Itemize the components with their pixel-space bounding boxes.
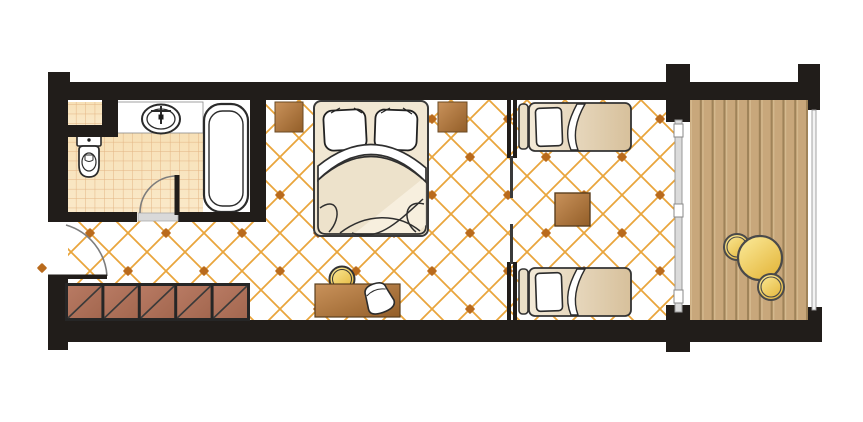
- pillow: [535, 273, 562, 312]
- door-handle: [674, 204, 683, 217]
- double-bed: [314, 101, 428, 236]
- door-handle: [674, 124, 683, 137]
- nightstand-right: [438, 102, 467, 132]
- balcony-railing: [812, 110, 816, 310]
- headboard: [519, 104, 528, 149]
- nightstand-left: [275, 102, 303, 132]
- headboard: [519, 269, 528, 314]
- bathroom: [67, 100, 250, 213]
- washbasin: [142, 105, 180, 134]
- partition-door-leaf: [510, 156, 513, 198]
- side-table: [555, 193, 590, 226]
- round-table: [738, 236, 782, 280]
- floor-plan-canvas: [0, 0, 863, 422]
- partition-door-leaf: [510, 224, 513, 264]
- door-leaf: [48, 275, 107, 280]
- balcony: [674, 100, 816, 320]
- pillow: [535, 108, 562, 147]
- wood-deck: [690, 100, 808, 320]
- wall-niche: [67, 102, 102, 125]
- toilet: [77, 134, 101, 177]
- door-handle: [674, 290, 683, 303]
- wardrobe: [65, 283, 250, 321]
- twin-bed-bottom: [519, 268, 631, 316]
- twin-bed-top: [519, 103, 631, 151]
- door-leaf: [175, 175, 180, 215]
- bathtub: [204, 104, 248, 212]
- balcony-stool-2: [758, 274, 784, 300]
- sliding-glass-door: [674, 120, 683, 312]
